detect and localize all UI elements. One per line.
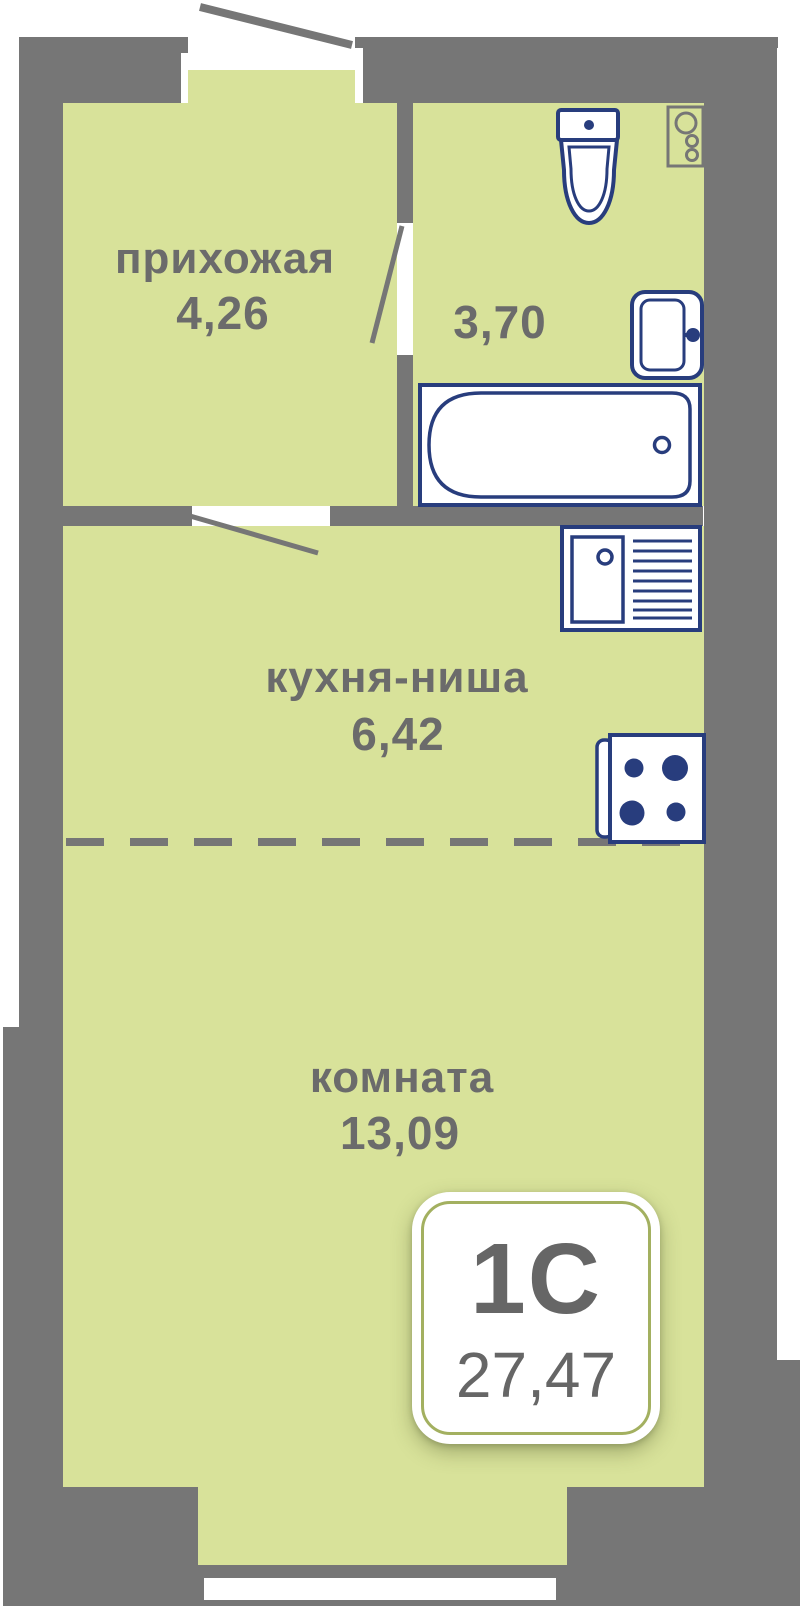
floor-plan: прихожая 4,26 3,70 кухня-ниша 6,42 комна… xyxy=(0,0,800,1606)
bathroom-wall-lower xyxy=(397,355,413,506)
kitchen-area: 6,42 xyxy=(351,707,445,761)
entrance-door-leaf xyxy=(200,7,352,45)
unit-type: 1С xyxy=(470,1229,602,1329)
left-wall-lower xyxy=(3,1027,63,1487)
living-room-area: 13,09 xyxy=(340,1106,460,1160)
bottom-left-wall-block xyxy=(3,1487,198,1606)
right-wall-step xyxy=(777,1360,800,1487)
living-room-label: комната xyxy=(310,1053,494,1103)
left-wall-upper xyxy=(19,37,63,1027)
kitchen-label: кухня-ниша xyxy=(265,653,528,703)
hallway-kitchen-wall-right xyxy=(330,506,703,526)
bay-window xyxy=(204,1578,556,1600)
hallway-kitchen-wall-left xyxy=(63,506,192,526)
kitchen-sink-icon xyxy=(562,527,700,630)
unit-badge: 1С 27,47 xyxy=(412,1192,660,1444)
bathtub-icon xyxy=(420,385,700,505)
entrance-doorway-floor xyxy=(188,70,355,103)
wash-basin-icon xyxy=(632,292,702,378)
stove-icon xyxy=(597,735,704,842)
hallway-label: прихожая xyxy=(115,234,335,284)
unit-total-area: 27,47 xyxy=(456,1343,616,1407)
top-right-wall xyxy=(363,48,777,103)
hallway-area: 4,26 xyxy=(176,286,270,340)
bathroom-wall-upper xyxy=(397,103,413,223)
bottom-right-wall-block xyxy=(567,1487,800,1606)
right-party-wall xyxy=(704,103,777,1487)
bay-floor xyxy=(198,1487,567,1565)
top-right-wall-jamb xyxy=(355,37,778,48)
bathroom-area: 3,70 xyxy=(453,295,547,349)
